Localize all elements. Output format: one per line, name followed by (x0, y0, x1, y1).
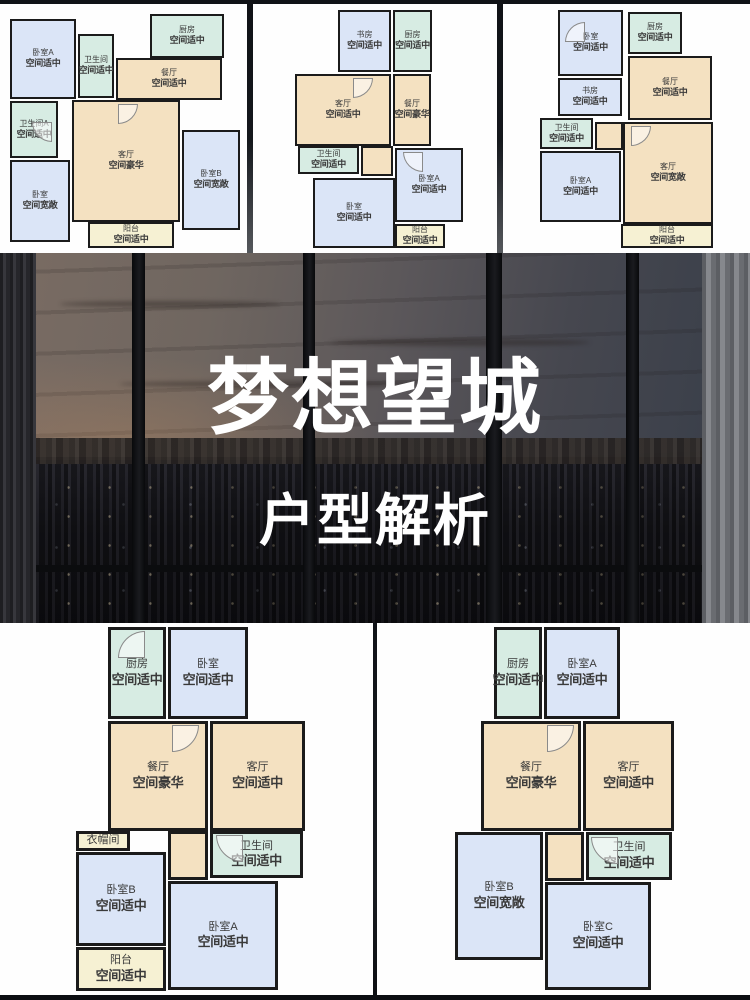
room-grade-label: 空间适中 (198, 934, 249, 950)
room-bedroom: 卧室空间适中 (558, 10, 623, 76)
room-grade-label: 空间适中 (79, 65, 114, 76)
room-grade-label: 空间适中 (395, 40, 430, 51)
poster-subtitle: 户型解析 (259, 476, 491, 557)
room-balcony: 阳台空间适中 (395, 224, 445, 248)
room-label: 卧室 (197, 658, 219, 672)
room-bedroom: 卧室A空间适中 (168, 881, 278, 990)
room-grade-label: 空间适中 (152, 78, 187, 89)
room-label: 厨房 (507, 658, 529, 672)
floorplan-strip-bottom: 厨房空间适中卧室空间适中餐厅空间豪华客厅空间适中衣帽间卫生间空间适中卧室B空间适… (0, 623, 750, 1000)
room-balcony: 阳台空间适中 (621, 224, 713, 248)
room-label: 厨房 (179, 25, 195, 35)
room-bedroom: 卧室A空间适中 (10, 19, 76, 99)
room-label: 卧室A (570, 176, 591, 186)
room-balcony: 阳台空间适中 (76, 947, 166, 991)
room-label: 卧室B (106, 884, 135, 898)
room-grade-label: 空间适中 (650, 235, 685, 246)
room-label: 阳台 (110, 954, 132, 968)
room-grade-label: 空间适中 (170, 35, 205, 46)
room-grade-label: 空间豪华 (395, 109, 430, 120)
room-label: 卧室 (346, 202, 362, 212)
room-living: 客厅空间适中 (295, 74, 391, 146)
room-filler (361, 146, 393, 176)
room-label: 餐厅 (662, 77, 678, 87)
room-grade-label: 空间宽敞 (651, 172, 686, 183)
room-bedroom: 卧室B空间宽敞 (455, 832, 543, 960)
room-label: 客厅 (618, 761, 640, 775)
room-bedroom: 卧室C空间适中 (545, 882, 651, 990)
room-grade-label: 空间适中 (183, 672, 234, 688)
room-living: 餐厅空间豪华 (393, 74, 431, 146)
room-label: 卫生间 (84, 55, 108, 65)
room-grade-label: 空间适中 (311, 159, 346, 170)
room-living: 客厅空间适中 (210, 721, 305, 831)
room-grade-label: 空间适中 (549, 133, 584, 144)
room-grade-label: 空间适中 (557, 672, 608, 688)
room-label: 卧室A (418, 174, 439, 184)
floorplan-panel-2: 书房空间适中厨房空间适中客厅空间适中餐厅空间豪华卫生间空间适中卧室A空间适中卧室… (253, 4, 497, 253)
room-label: 客厅 (335, 99, 351, 109)
room-utility: 厨房空间适中 (494, 627, 542, 719)
room-label: 卧室A (567, 658, 596, 672)
room-bedroom: 卧室A空间适中 (544, 627, 620, 719)
room-grade-label: 空间适中 (573, 935, 624, 951)
room-grade-label: 空间适中 (26, 58, 61, 69)
room-label: 书房 (582, 86, 598, 96)
poster-title: 梦想望城 (207, 331, 543, 450)
room-grade-label: 空间适中 (326, 109, 361, 120)
hero-photo: 梦想望城 户型解析 (0, 253, 750, 623)
room-grade-label: 空间豪华 (506, 775, 557, 791)
room-bedroom: 卧室空间适中 (313, 178, 395, 248)
room-label: 卧室 (32, 190, 48, 200)
room-grade-label: 空间宽敞 (23, 200, 58, 211)
room-grade-label: 空间适中 (232, 775, 283, 791)
room-label: 卫生间 (317, 149, 341, 159)
room-grade-label: 空间豪华 (133, 775, 184, 791)
room-grade-label: 空间宽敞 (194, 179, 229, 190)
room-grade-label: 空间适中 (573, 42, 608, 53)
room-grade-label: 空间适中 (347, 40, 382, 51)
room-label: 厨房 (405, 30, 421, 40)
room-grade-label: 空间适中 (573, 96, 608, 107)
room-label: 餐厅 (520, 761, 542, 775)
room-balcony: 衣帽间 (76, 831, 130, 851)
room-living: 客厅空间适中 (583, 721, 674, 831)
room-utility: 卫生间空间适中 (540, 118, 593, 149)
room-label: 卧室A (208, 921, 237, 935)
room-grade-label: 空间适中 (96, 968, 147, 984)
room-utility: 厨房空间适中 (150, 14, 224, 58)
room-label: 餐厅 (161, 68, 177, 78)
room-grade-label: 空间豪华 (109, 160, 144, 171)
room-utility: 厨房空间适中 (628, 12, 682, 54)
poster-canvas: 卧室A空间适中卫生间空间适中厨房空间适中餐厅空间适中卫生间A空间适中客厅空间豪华… (0, 0, 750, 1000)
floorplan-panel-1: 卧室A空间适中卫生间空间适中厨房空间适中餐厅空间适中卫生间A空间适中客厅空间豪华… (0, 4, 247, 253)
room-label: 阳台 (659, 225, 675, 235)
room-label: 阳台 (412, 225, 428, 235)
room-label: 客厅 (118, 150, 134, 160)
room-grade-label: 空间宽敞 (474, 895, 525, 911)
room-grade-label: 空间适中 (403, 235, 438, 246)
room-bedroom: 卧室B空间适中 (76, 852, 166, 946)
room-grade-label: 空间适中 (412, 184, 447, 195)
room-utility: 卫生间空间适中 (298, 146, 359, 174)
room-living: 餐厅空间适中 (628, 56, 712, 120)
room-filler (545, 832, 584, 881)
room-filler (168, 831, 208, 880)
room-label: 卧室C (583, 921, 613, 935)
room-balcony: 阳台空间适中 (88, 222, 174, 248)
room-filler (595, 122, 623, 150)
room-bedroom: 书房空间适中 (338, 10, 391, 72)
room-label: 阳台 (123, 224, 139, 234)
room-utility: 卫生间空间适中 (78, 34, 114, 98)
room-label: 卫生间 (555, 123, 579, 133)
room-grade-label: 空间适中 (563, 186, 598, 197)
floorplan-panel-5: 厨房空间适中卧室A空间适中餐厅空间豪华客厅空间适中卫生间空间适中卧室B空间宽敞卧… (377, 623, 750, 995)
room-label: 卧室B (200, 169, 221, 179)
room-grade-label: 空间适中 (337, 212, 372, 223)
room-grade-label: 空间适中 (603, 775, 654, 791)
room-grade-label: 空间适中 (112, 672, 163, 688)
room-grade-label: 空间适中 (638, 32, 673, 43)
room-living: 餐厅空间适中 (116, 58, 222, 100)
room-bedroom: 卧室空间宽敞 (10, 160, 70, 242)
room-label: 卫生间 (240, 840, 273, 854)
room-grade-label: 空间适中 (96, 898, 147, 914)
room-label: 卧室B (484, 881, 513, 895)
room-bedroom: 卧室A空间适中 (540, 151, 621, 222)
room-label: 餐厅 (404, 99, 420, 109)
room-grade-label: 空间适中 (653, 87, 688, 98)
room-bedroom: 书房空间适中 (558, 78, 622, 116)
room-label: 书房 (357, 30, 373, 40)
room-utility: 厨房空间适中 (393, 10, 432, 72)
room-label: 客厅 (247, 761, 269, 775)
floorplan-panel-4: 厨房空间适中卧室空间适中餐厅空间豪华客厅空间适中衣帽间卫生间空间适中卧室B空间适… (0, 623, 373, 995)
room-grade-label: 空间适中 (493, 672, 544, 688)
room-label: 衣帽间 (87, 834, 120, 848)
room-grade-label: 空间适中 (114, 234, 149, 245)
room-bedroom: 卧室空间适中 (168, 627, 248, 719)
room-label: 卧室A (32, 48, 53, 58)
room-label: 厨房 (126, 658, 148, 672)
room-label: 客厅 (660, 162, 676, 172)
room-label: 厨房 (647, 22, 663, 32)
hero-text-block: 梦想望城 户型解析 (0, 259, 750, 623)
room-bedroom: 卧室B空间宽敞 (182, 130, 240, 230)
floorplan-strip-top: 卧室A空间适中卫生间空间适中厨房空间适中餐厅空间适中卫生间A空间适中客厅空间豪华… (0, 0, 750, 253)
floorplan-panel-3: 卧室空间适中厨房空间适中餐厅空间适中书房空间适中卫生间空间适中客厅空间宽敞卧室A… (503, 4, 750, 253)
room-label: 餐厅 (147, 761, 169, 775)
